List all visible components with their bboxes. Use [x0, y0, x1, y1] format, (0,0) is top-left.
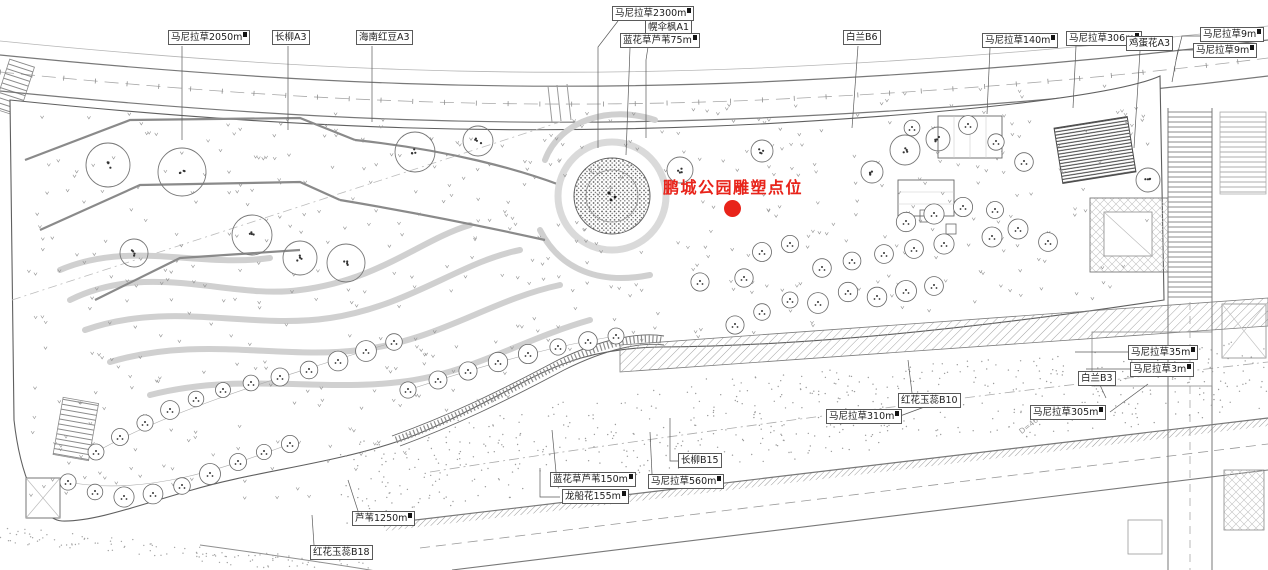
sculpture-annotation-title: 鹏城公园雕塑点位 — [663, 174, 803, 198]
sqm-mark-icon — [1187, 364, 1191, 369]
right-road — [1168, 108, 1212, 570]
plant-label: 马尼拉草310m — [826, 409, 902, 424]
plant-label: 马尼拉草35m — [1128, 345, 1198, 360]
plant-label: 海南红豆A3 — [356, 30, 413, 45]
plant-label: 马尼拉草560m — [648, 474, 724, 489]
plant-label: 长柳A3 — [272, 30, 310, 45]
central-plaza — [558, 142, 666, 250]
plant-label: 马尼拉草9m — [1193, 43, 1257, 58]
plant-label: 蓝花草芦苇150m — [550, 472, 636, 487]
sqm-mark-icon — [1099, 407, 1103, 412]
plant-label: 鸡蛋花A3 — [1126, 36, 1173, 51]
sqm-mark-icon — [717, 476, 721, 481]
plant-label: 马尼拉草9m — [1200, 27, 1264, 42]
sqm-mark-icon — [1250, 45, 1254, 50]
plant-label: 长柳B15 — [678, 453, 722, 468]
sqm-mark-icon — [895, 411, 899, 416]
sqm-mark-icon — [622, 491, 626, 496]
plant-label: 马尼拉草2050m — [168, 30, 250, 45]
sqm-mark-icon — [687, 8, 691, 13]
plant-label: 马尼拉草140m — [982, 33, 1058, 48]
sculpture-point-marker[interactable] — [724, 200, 741, 217]
sqm-mark-icon — [629, 474, 633, 479]
plant-label: 红花玉蕊B10 — [898, 393, 961, 408]
plant-label: 蓝花草芦苇75m — [620, 33, 700, 48]
sqm-mark-icon — [1051, 35, 1055, 40]
plant-label: 芦苇1250m — [352, 511, 415, 526]
sqm-mark-icon — [693, 35, 697, 40]
landscape-plan-canvas: 马尼拉草2050m 长柳A3 海南红豆A3 马尼拉草2300m 幌伞枫A1 蓝花… — [0, 0, 1268, 570]
plant-label: 龙船花155m — [562, 489, 629, 504]
plant-label: 白兰B6 — [843, 30, 881, 45]
plant-label: 马尼拉草2300m — [612, 6, 694, 21]
plant-label: 红花玉蕊B18 — [310, 545, 373, 560]
stairs-structure — [1054, 117, 1136, 184]
plant-label: 白兰B3 — [1078, 371, 1116, 386]
plant-label: 马尼拉草305m — [1030, 405, 1106, 420]
plant-label: 马尼拉草3m — [1130, 362, 1194, 377]
sqm-mark-icon — [1257, 29, 1261, 34]
sqm-mark-icon — [408, 513, 412, 518]
sqm-mark-icon — [1191, 347, 1195, 352]
sqm-mark-icon — [243, 32, 247, 37]
